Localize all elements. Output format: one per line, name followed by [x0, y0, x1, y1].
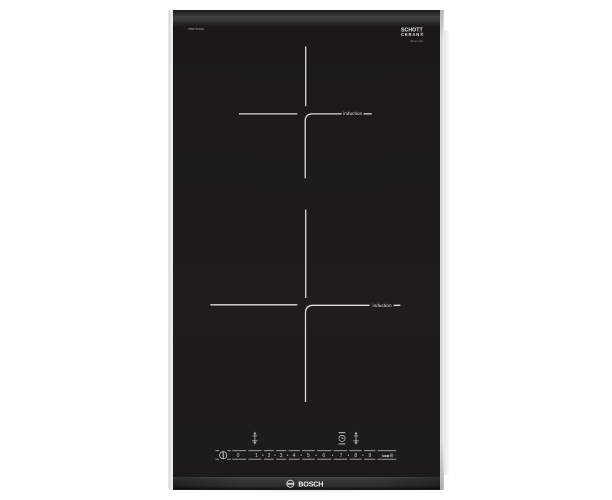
svg-text:5: 5	[307, 453, 310, 459]
svg-text:7: 7	[340, 453, 343, 459]
svg-text:BOSCH: BOSCH	[298, 480, 323, 489]
svg-text:CERAN®: CERAN®	[401, 32, 424, 37]
svg-text:induction: induction	[373, 303, 392, 308]
svg-text:2: 2	[268, 453, 271, 459]
svg-text:boost: boost	[382, 454, 390, 458]
svg-text:8: 8	[354, 453, 357, 459]
svg-text:3: 3	[280, 453, 283, 459]
svg-text:9: 9	[368, 453, 371, 459]
svg-text:induction: induction	[343, 111, 362, 116]
svg-text:1: 1	[255, 453, 258, 459]
svg-text:Miroir relief: Miroir relief	[411, 40, 424, 43]
svg-text:4: 4	[293, 453, 296, 459]
svg-text:PIB375FB1E: PIB375FB1E	[188, 27, 205, 31]
svg-text:6: 6	[322, 453, 325, 459]
svg-text:0: 0	[237, 453, 240, 459]
